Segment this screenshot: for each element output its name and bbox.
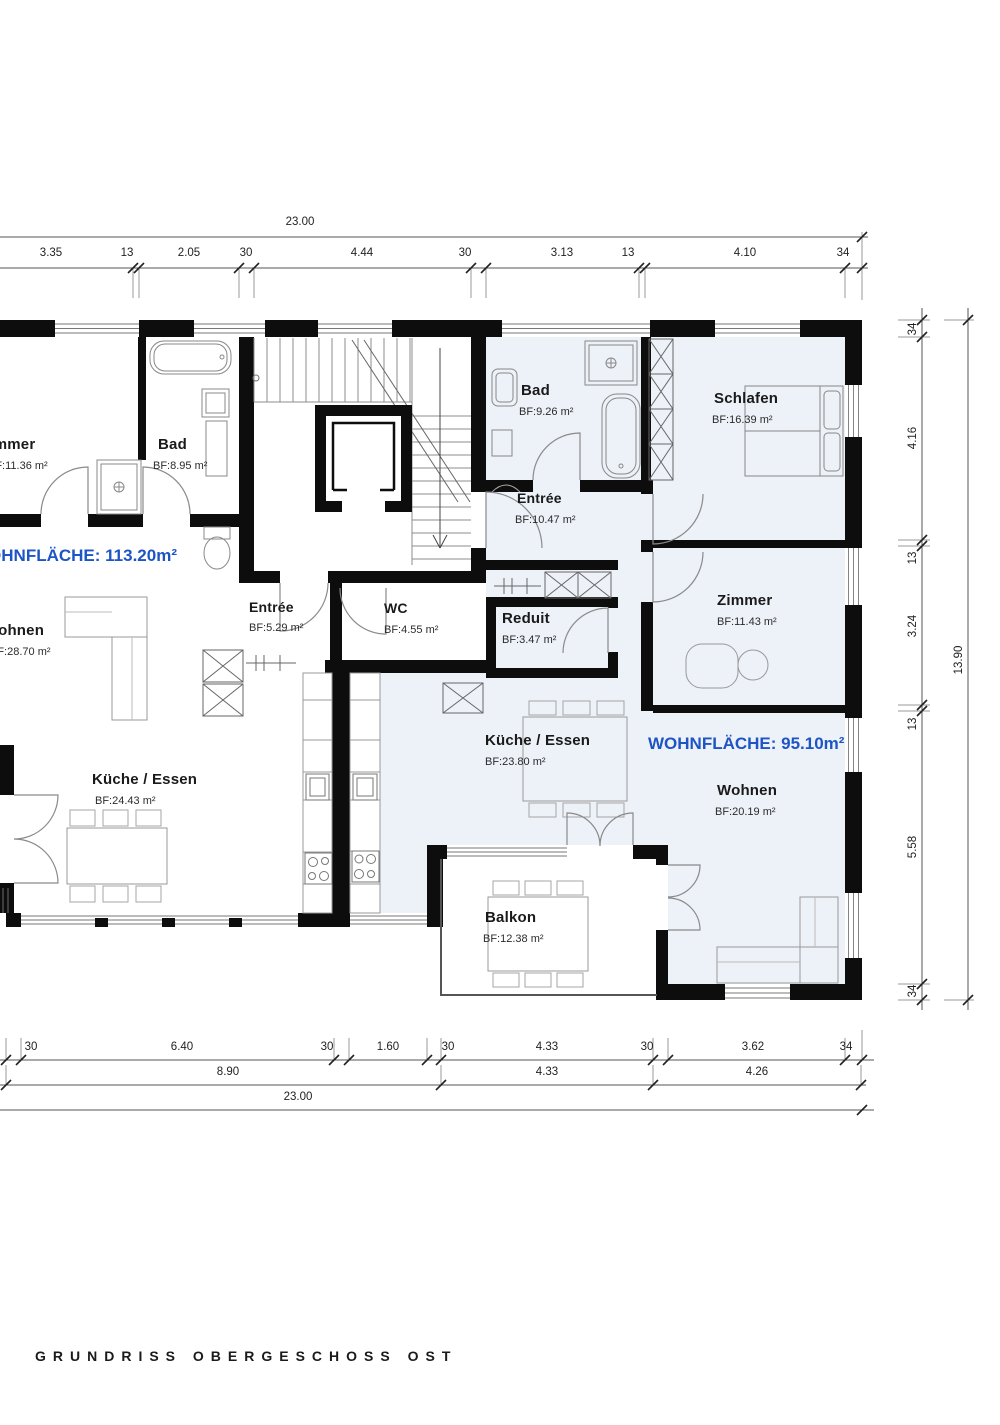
coat-rod-left bbox=[246, 655, 296, 671]
room-area-zimmer-right: BF:11.43 m² bbox=[717, 616, 777, 628]
wohnflaeche-right: WOHNFLÄCHE: 95.10m² bbox=[648, 734, 844, 754]
dim-bottom2-1: 4.33 bbox=[536, 1066, 558, 1078]
room-area-wohnen-right: BF:20.19 m² bbox=[715, 806, 776, 818]
room-label-balkon: Balkon bbox=[485, 909, 536, 926]
room-area-wc: BF:4.55 m² bbox=[384, 624, 438, 636]
room-label-wohnen-right: Wohnen bbox=[717, 782, 777, 799]
dim-bottom-total: 23.00 bbox=[284, 1091, 313, 1103]
balcony-outline bbox=[441, 859, 657, 995]
dim-top-2: 2.05 bbox=[178, 247, 200, 259]
dim-bottom1-7: 3.62 bbox=[742, 1041, 764, 1053]
dim-top-1: 13 bbox=[121, 247, 134, 259]
dim-right-1: 4.16 bbox=[907, 427, 919, 449]
dim-top-total: 23.00 bbox=[286, 216, 315, 228]
room-area-kueche-right: BF:23.80 m² bbox=[485, 756, 546, 768]
wohnflaeche-left: WOHNFLÄCHE: 113.20m² bbox=[0, 546, 177, 566]
dim-top-7: 13 bbox=[622, 247, 635, 259]
staircase bbox=[253, 338, 471, 565]
dim-top-8: 4.10 bbox=[734, 247, 756, 259]
room-label-wohnen-left: Wohnen bbox=[0, 622, 44, 639]
dim-right-5: 5.58 bbox=[907, 836, 919, 858]
room-area-entree-left: BF:5.29 m² bbox=[249, 622, 303, 634]
room-label-wc: WC bbox=[384, 600, 408, 616]
room-label-kueche-right: Küche / Essen bbox=[485, 732, 590, 749]
dim-bottom2-0: 8.90 bbox=[217, 1066, 239, 1078]
room-area-reduit: BF:3.47 m² bbox=[502, 634, 556, 646]
room-label-kueche-left: Küche / Essen bbox=[92, 771, 197, 788]
room-area-entree-right: BF:10.47 m² bbox=[515, 514, 576, 526]
dim-right-2: 13 bbox=[907, 552, 919, 565]
room-label-schlafen: Schlafen bbox=[714, 390, 778, 407]
dim-bottom1-6: 30 bbox=[641, 1041, 654, 1053]
floor-plan-drawing bbox=[0, 0, 1000, 1425]
dim-right-total: 13.90 bbox=[953, 646, 965, 675]
dim-top-3: 30 bbox=[240, 247, 253, 259]
dim-bottom1-2: 30 bbox=[321, 1041, 334, 1053]
dim-top-6: 3.13 bbox=[551, 247, 573, 259]
window-mullions bbox=[95, 918, 242, 927]
dim-bottom1-3: 1.60 bbox=[377, 1041, 399, 1053]
room-label-entree-right: Entrée bbox=[517, 490, 562, 506]
floorplan-page: Zimmer BF:11.36 m² Bad BF:8.95 m² WOHNFL… bbox=[0, 0, 1000, 1425]
dim-right-0: 34 bbox=[907, 323, 919, 336]
room-area-kueche-left: BF:24.43 m² bbox=[95, 795, 156, 807]
dim-bottom1-0: 30 bbox=[25, 1041, 38, 1053]
dim-bottom1-8: 34 bbox=[840, 1041, 853, 1053]
dim-top-0: 3.35 bbox=[40, 247, 62, 259]
dim-right-6: 34 bbox=[907, 985, 919, 998]
dim-top-9: 34 bbox=[837, 247, 850, 259]
drawing-title: GRUNDRISS OBERGESCHOSS OST bbox=[35, 1348, 457, 1364]
dim-bottom2-2: 4.26 bbox=[746, 1066, 768, 1078]
dim-top-4: 4.44 bbox=[351, 247, 373, 259]
room-label-zimmer-right: Zimmer bbox=[717, 592, 772, 609]
room-label-reduit: Reduit bbox=[502, 610, 550, 627]
room-area-balkon: BF:12.38 m² bbox=[483, 933, 544, 945]
elevator bbox=[315, 405, 412, 512]
room-label-zimmer-left: Zimmer bbox=[0, 436, 35, 453]
room-area-schlafen: BF:16.39 m² bbox=[712, 414, 773, 426]
room-area-wohnen-left: BF:28.70 m² bbox=[0, 646, 51, 658]
dim-bottom1-4: 30 bbox=[442, 1041, 455, 1053]
dim-top-5: 30 bbox=[459, 247, 472, 259]
dim-bottom1-5: 4.33 bbox=[536, 1041, 558, 1053]
dim-right-3: 3.24 bbox=[907, 615, 919, 637]
dim-bottom1-1: 6.40 bbox=[171, 1041, 193, 1053]
room-area-bad-right: BF:9.26 m² bbox=[519, 406, 573, 418]
room-area-bad-left: BF:8.95 m² bbox=[153, 460, 207, 472]
room-label-entree-left: Entrée bbox=[249, 599, 294, 615]
room-area-zimmer-left: BF:11.36 m² bbox=[0, 460, 48, 472]
room-label-bad-left: Bad bbox=[158, 436, 187, 453]
room-label-bad-right: Bad bbox=[521, 382, 550, 399]
dim-right-4: 13 bbox=[907, 718, 919, 731]
